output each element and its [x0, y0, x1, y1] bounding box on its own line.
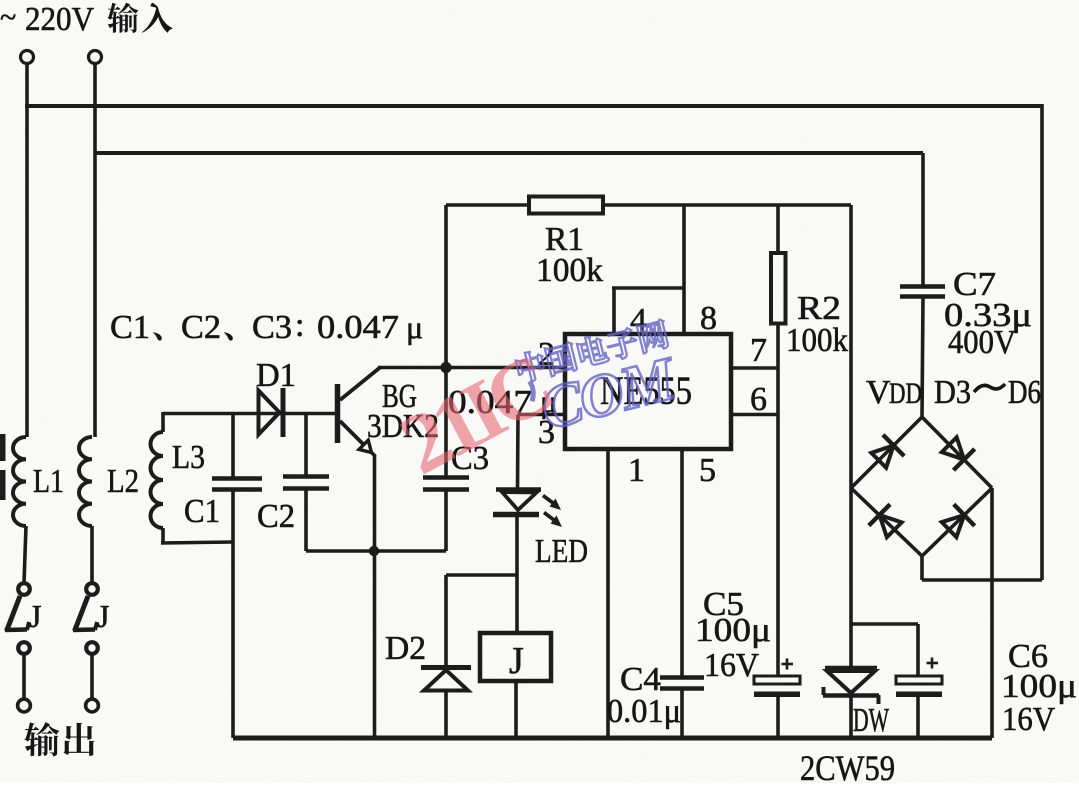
svg-text:C1: C1: [184, 493, 220, 530]
svg-text:J: J: [29, 598, 41, 634]
svg-text:1: 1: [628, 452, 645, 489]
svg-text:D2: D2: [385, 630, 426, 667]
svg-text:J: J: [97, 598, 109, 634]
svg-text:D1: D1: [256, 357, 296, 394]
svg-text:0.01μ: 0.01μ: [607, 693, 681, 730]
svg-text:400V: 400V: [948, 324, 1016, 361]
svg-text:100μ: 100μ: [1001, 668, 1077, 705]
svg-text::: :: [295, 307, 304, 344]
svg-text:D3: D3: [934, 374, 971, 411]
svg-text:μ: μ: [406, 309, 423, 345]
svg-text:C2: C2: [181, 309, 221, 346]
svg-text:C3: C3: [252, 309, 292, 346]
svg-text:5: 5: [699, 452, 716, 489]
svg-text:C1: C1: [110, 309, 150, 346]
svg-text:V: V: [866, 374, 891, 411]
svg-text:DW: DW: [853, 702, 890, 739]
svg-text:DD: DD: [889, 377, 922, 410]
svg-text:100k: 100k: [786, 322, 848, 359]
svg-text:8: 8: [700, 300, 717, 337]
svg-text:D6: D6: [1008, 374, 1041, 411]
svg-text:100k: 100k: [536, 252, 603, 289]
svg-text:7: 7: [750, 332, 767, 369]
svg-text:J: J: [509, 640, 524, 682]
svg-text:16V: 16V: [704, 647, 759, 684]
svg-text:C2: C2: [257, 498, 295, 535]
svg-text:~: ~: [0, 1, 16, 34]
svg-text:L2: L2: [107, 463, 139, 500]
svg-text:2CW59: 2CW59: [800, 748, 895, 783]
svg-text:0.047: 0.047: [317, 309, 399, 346]
svg-text:L1: L1: [33, 463, 64, 500]
svg-text:6: 6: [750, 381, 767, 418]
svg-text:220V: 220V: [25, 1, 94, 38]
svg-text:100μ: 100μ: [695, 612, 771, 649]
svg-text:L3: L3: [172, 439, 205, 476]
svg-text:16V: 16V: [1002, 701, 1055, 738]
svg-text:LED: LED: [535, 533, 588, 570]
